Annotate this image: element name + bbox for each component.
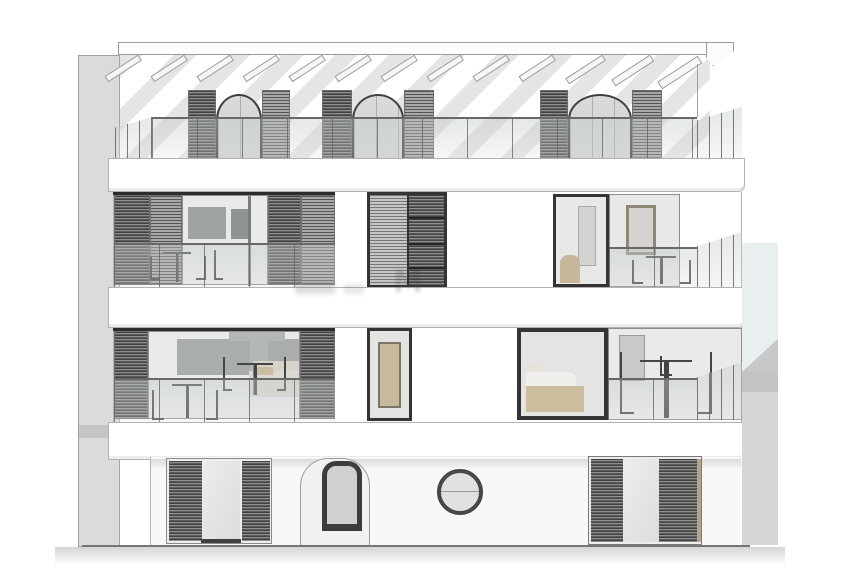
- floor2-balcony-side-railing: [697, 232, 742, 287]
- lower-slab-band: [108, 422, 745, 460]
- shutter-leaf: [659, 459, 697, 542]
- louver-crossbar: [409, 217, 444, 219]
- roof-slope-shape: [742, 335, 778, 372]
- interior-door: [378, 342, 401, 408]
- pavement-strip: [55, 547, 785, 564]
- roof-balustrade: [152, 117, 697, 158]
- floor1-balcony-railing: [608, 378, 697, 420]
- interior-armchair: [560, 255, 580, 283]
- shutter-center-panel: [202, 461, 240, 541]
- window-sill: [201, 539, 241, 543]
- round-window-muntin: [441, 491, 479, 492]
- elevation-drawing: M: [0, 0, 851, 582]
- interior-door: [578, 206, 596, 266]
- adjacent-roof-slope: [742, 335, 778, 372]
- pergola-fascia-end-cap: [706, 42, 734, 66]
- shutter-leaf: [242, 461, 270, 541]
- watermark-smudge: [295, 282, 335, 294]
- watermark-smudge: [344, 284, 364, 294]
- louver-crossbar: [409, 243, 444, 245]
- floor1-framed-window: [367, 328, 412, 421]
- bed-base: [526, 386, 584, 412]
- arched-entry-niche: [300, 458, 370, 546]
- floor2-balcony-railing: [114, 243, 335, 287]
- shutter-edge-trim: [697, 459, 701, 542]
- interior-column-beam: [229, 332, 285, 341]
- ground-shuttered-window-left: [166, 458, 272, 544]
- penthouse-corner-edge: [697, 64, 698, 117]
- pergola-fascia: [118, 42, 714, 55]
- adjacent-sky-strip: [742, 243, 778, 335]
- shutter-center-panel: [623, 459, 659, 542]
- adjacent-eave-band: [742, 372, 778, 392]
- floor2-balcony-railing: [609, 247, 697, 287]
- interior-wall-panel: [188, 207, 226, 239]
- terrace-chair: [660, 356, 672, 376]
- round-window: [437, 469, 483, 515]
- middle-slab-band: [108, 287, 745, 328]
- watermark-letter: M: [393, 268, 423, 298]
- floor2-framed-window: [553, 194, 609, 287]
- floor1-balcony-railing: [114, 378, 335, 422]
- floor1-bedroom-window: [517, 328, 608, 420]
- shutter-leaf: [169, 461, 202, 541]
- roof-slab-band: [108, 158, 745, 192]
- adjacent-wall: [742, 392, 778, 545]
- ground-shuttered-window-right: [588, 456, 702, 545]
- entry-door: [322, 461, 362, 531]
- shutter-leaf: [591, 459, 623, 542]
